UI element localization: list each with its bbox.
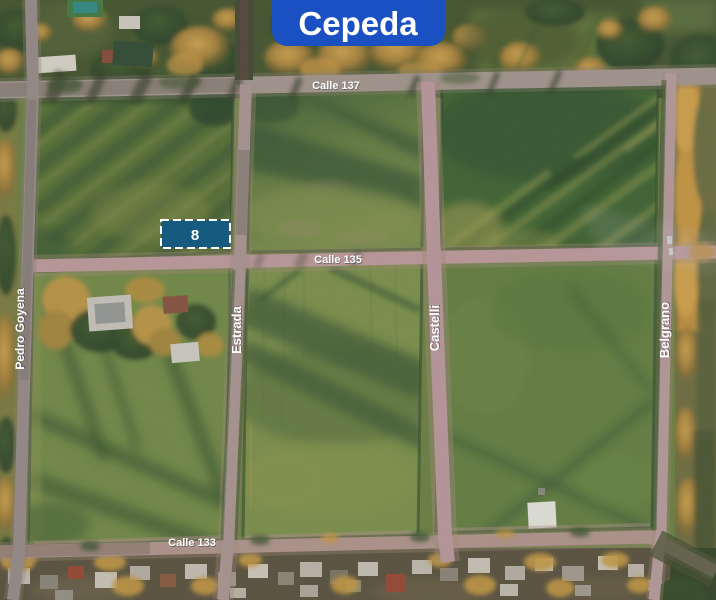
svg-text:Calle 137: Calle 137 (312, 80, 360, 92)
svg-text:Cepeda: Cepeda (298, 5, 418, 42)
svg-text:Belgrano: Belgrano (657, 302, 672, 358)
svg-text:Estrada: Estrada (229, 305, 244, 353)
svg-text:Calle 133: Calle 133 (168, 537, 216, 549)
svg-text:Calle 135: Calle 135 (314, 254, 362, 266)
svg-text:8: 8 (191, 227, 199, 244)
svg-text:Castelli: Castelli (427, 305, 442, 351)
svg-text:Pedro Goyena: Pedro Goyena (13, 288, 27, 370)
